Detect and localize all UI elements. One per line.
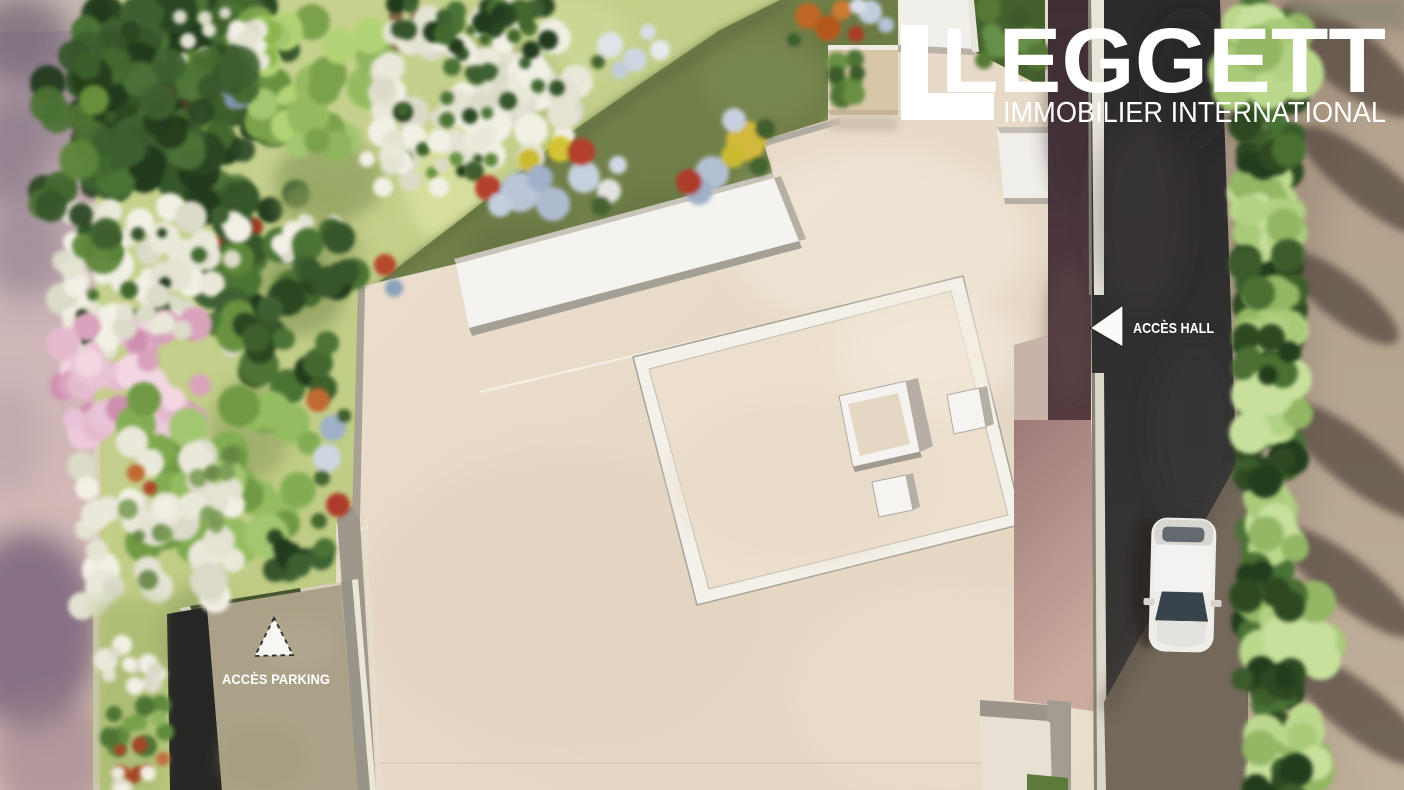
svg-text:ACCÈS PARKING: ACCÈS PARKING — [222, 672, 330, 687]
svg-text:IMMOBILIER INTERNATIONAL: IMMOBILIER INTERNATIONAL — [1003, 97, 1386, 129]
svg-text:ACCÈS HALL: ACCÈS HALL — [1133, 320, 1214, 337]
